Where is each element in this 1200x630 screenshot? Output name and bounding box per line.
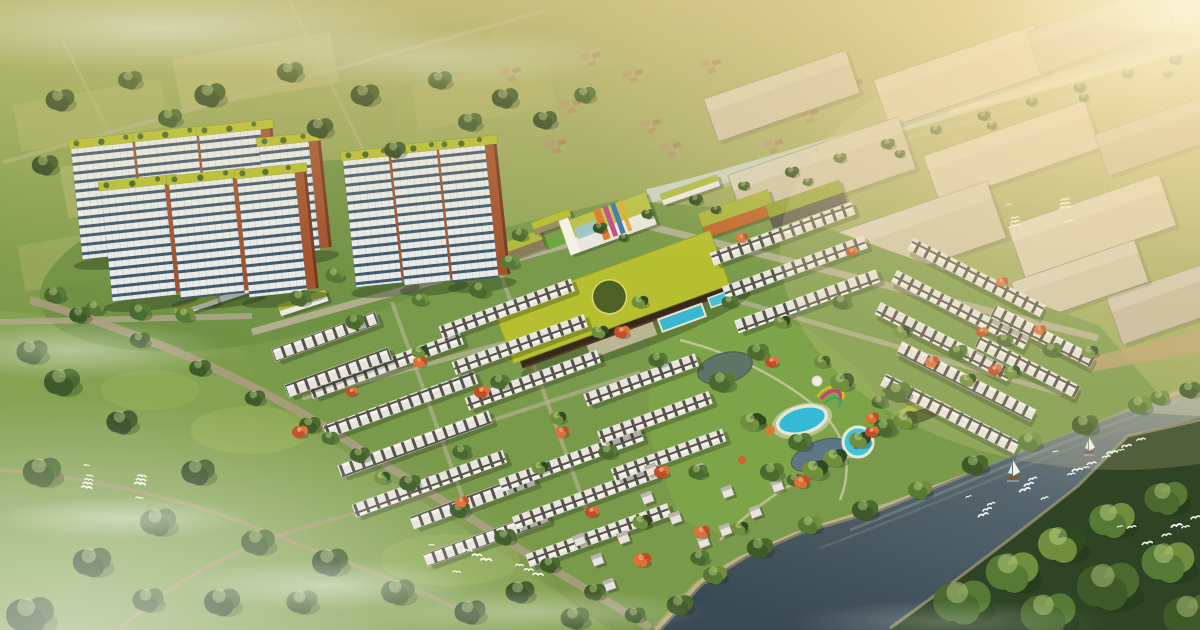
- haze-streak: [230, 28, 630, 88]
- playground: [738, 456, 746, 464]
- aerial-masterplan-render: [0, 0, 1200, 630]
- mist-streak: [0, 496, 250, 540]
- render-canvas: [0, 0, 1200, 630]
- shade-canopy: [812, 376, 822, 386]
